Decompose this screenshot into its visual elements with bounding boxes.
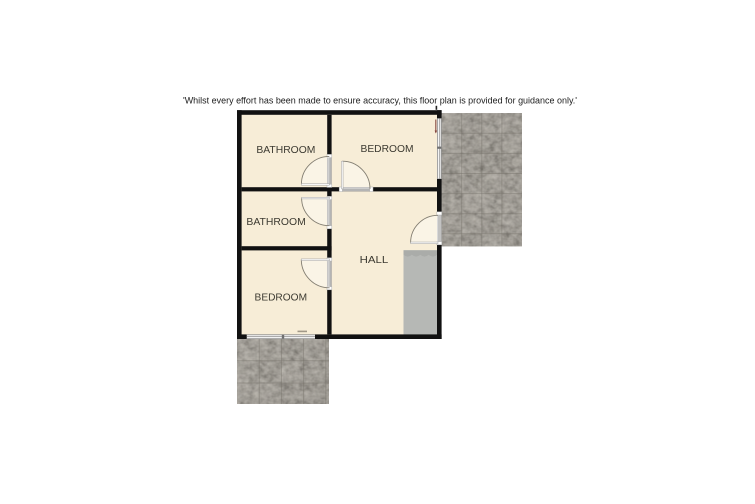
svg-text:'Whilst every effort has been: 'Whilst every effort has been made to en… <box>183 96 577 106</box>
svg-text:BEDROOM: BEDROOM <box>255 292 308 303</box>
svg-text:BATHROOM: BATHROOM <box>256 145 315 156</box>
svg-text:BEDROOM: BEDROOM <box>361 144 414 155</box>
svg-text:BATHROOM: BATHROOM <box>246 217 305 228</box>
svg-text:HALL: HALL <box>360 255 389 266</box>
